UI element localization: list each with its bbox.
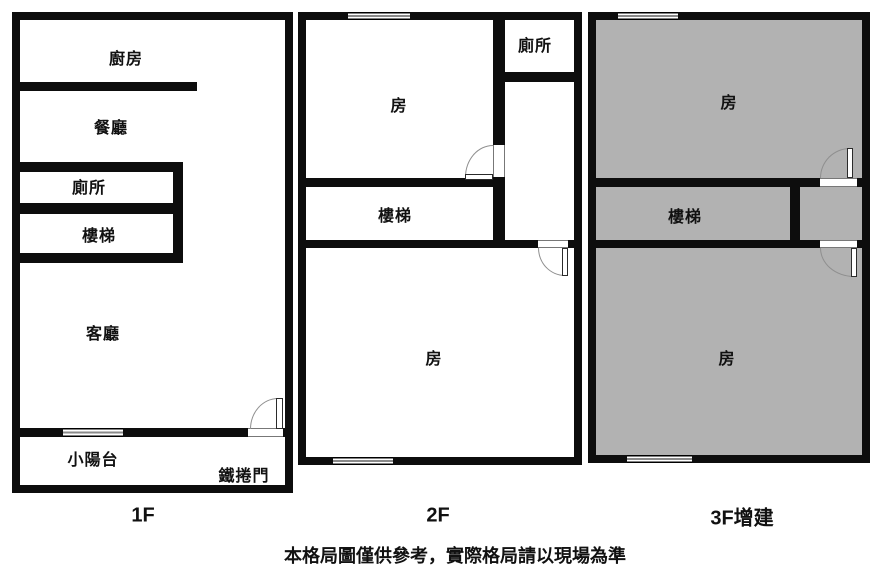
wall-bottom-2 <box>692 455 870 463</box>
room-label-dining: 餐廳 <box>94 114 128 138</box>
wall-toilet-bottom <box>493 72 582 82</box>
wall-toilet-stairs <box>12 203 183 214</box>
room-label-room-bottom: 房 <box>425 345 442 369</box>
wall-room-bottom-2 <box>857 178 870 187</box>
wall-stairs-bottom-2 <box>857 240 870 248</box>
wall-bottom <box>12 485 293 493</box>
wall-toilet-top <box>12 162 183 172</box>
room-label-toilet: 廁所 <box>72 174 106 198</box>
wall-living-balcony-2 <box>123 428 248 437</box>
room-label-room-top: 房 <box>720 89 737 113</box>
room-label-stairs: 樓梯 <box>378 202 412 226</box>
floor-label-3f: 3F增建 <box>710 502 773 531</box>
door-opening <box>248 428 283 437</box>
wall-stairs-bottom-1 <box>298 240 538 248</box>
room-label-room-bottom: 房 <box>718 345 735 369</box>
door-panel <box>276 398 283 429</box>
room-label-stairs: 樓梯 <box>668 203 702 227</box>
door-opening <box>538 240 568 248</box>
door-opening <box>820 240 857 248</box>
window <box>333 457 393 465</box>
wall-stairs-right <box>790 187 800 240</box>
wall-kitchen <box>12 82 197 91</box>
wall-vertical-upper <box>493 12 505 145</box>
disclaimer-note: 本格局圖僅供參考，實際格局請以現場為準 <box>284 542 626 568</box>
window <box>348 12 410 20</box>
window <box>627 455 692 463</box>
wall-room-bottom-1 <box>588 178 820 187</box>
room-label-balcony: 小陽台 <box>67 446 118 470</box>
floorplan-1f: 廚房 餐廳 廁所 樓梯 客廳 小陽台 鐵捲門 <box>12 12 293 493</box>
room-label-living: 客廳 <box>86 320 120 344</box>
wall-bottom-2 <box>393 457 582 465</box>
window <box>63 428 123 437</box>
door-swing-arc <box>250 398 278 429</box>
wall-living-balcony-3 <box>283 428 293 437</box>
wall-stairs-bottom-1 <box>588 240 820 248</box>
window <box>618 12 678 20</box>
wall-box-right <box>173 162 183 263</box>
floorplan-page: { "note": "本格局圖僅供參考，實際格局請以現場為準", "floors… <box>0 0 889 569</box>
wall-living-balcony-1 <box>12 428 63 437</box>
room-label-toilet: 廁所 <box>518 32 552 56</box>
wall-stairs-bottom <box>12 253 183 263</box>
wall-bottom-1 <box>298 457 333 465</box>
wall-right <box>285 12 293 493</box>
wall-stairs-bottom-2 <box>568 240 582 248</box>
door-swing-arc <box>820 148 850 178</box>
wall-top-2 <box>678 12 870 20</box>
floorplan-3f: 房 樓梯 房 <box>588 12 870 463</box>
room-label-roller-door: 鐵捲門 <box>218 462 269 486</box>
door-panel <box>465 174 493 180</box>
door-panel <box>851 248 857 277</box>
wall-top <box>12 12 293 20</box>
wall-left <box>588 12 596 463</box>
wall-right <box>862 12 870 463</box>
door-opening <box>820 178 857 187</box>
door-swing-arc <box>820 248 854 277</box>
room-label-room-top: 房 <box>390 92 407 116</box>
floor-label-1f: 1F <box>131 505 154 528</box>
floor-label-2f: 2F <box>426 505 449 528</box>
wall-left <box>298 12 306 465</box>
door-panel <box>562 248 568 276</box>
door-panel <box>847 148 853 178</box>
door-swing-arc <box>538 248 565 276</box>
room-label-stairs: 樓梯 <box>82 222 116 246</box>
room-label-kitchen: 廚房 <box>109 45 143 69</box>
door-swing-arc <box>465 145 493 177</box>
wall-bottom-1 <box>588 455 627 463</box>
door-opening <box>493 145 505 177</box>
floorplan-2f: 房 廁所 樓梯 房 <box>298 12 582 465</box>
